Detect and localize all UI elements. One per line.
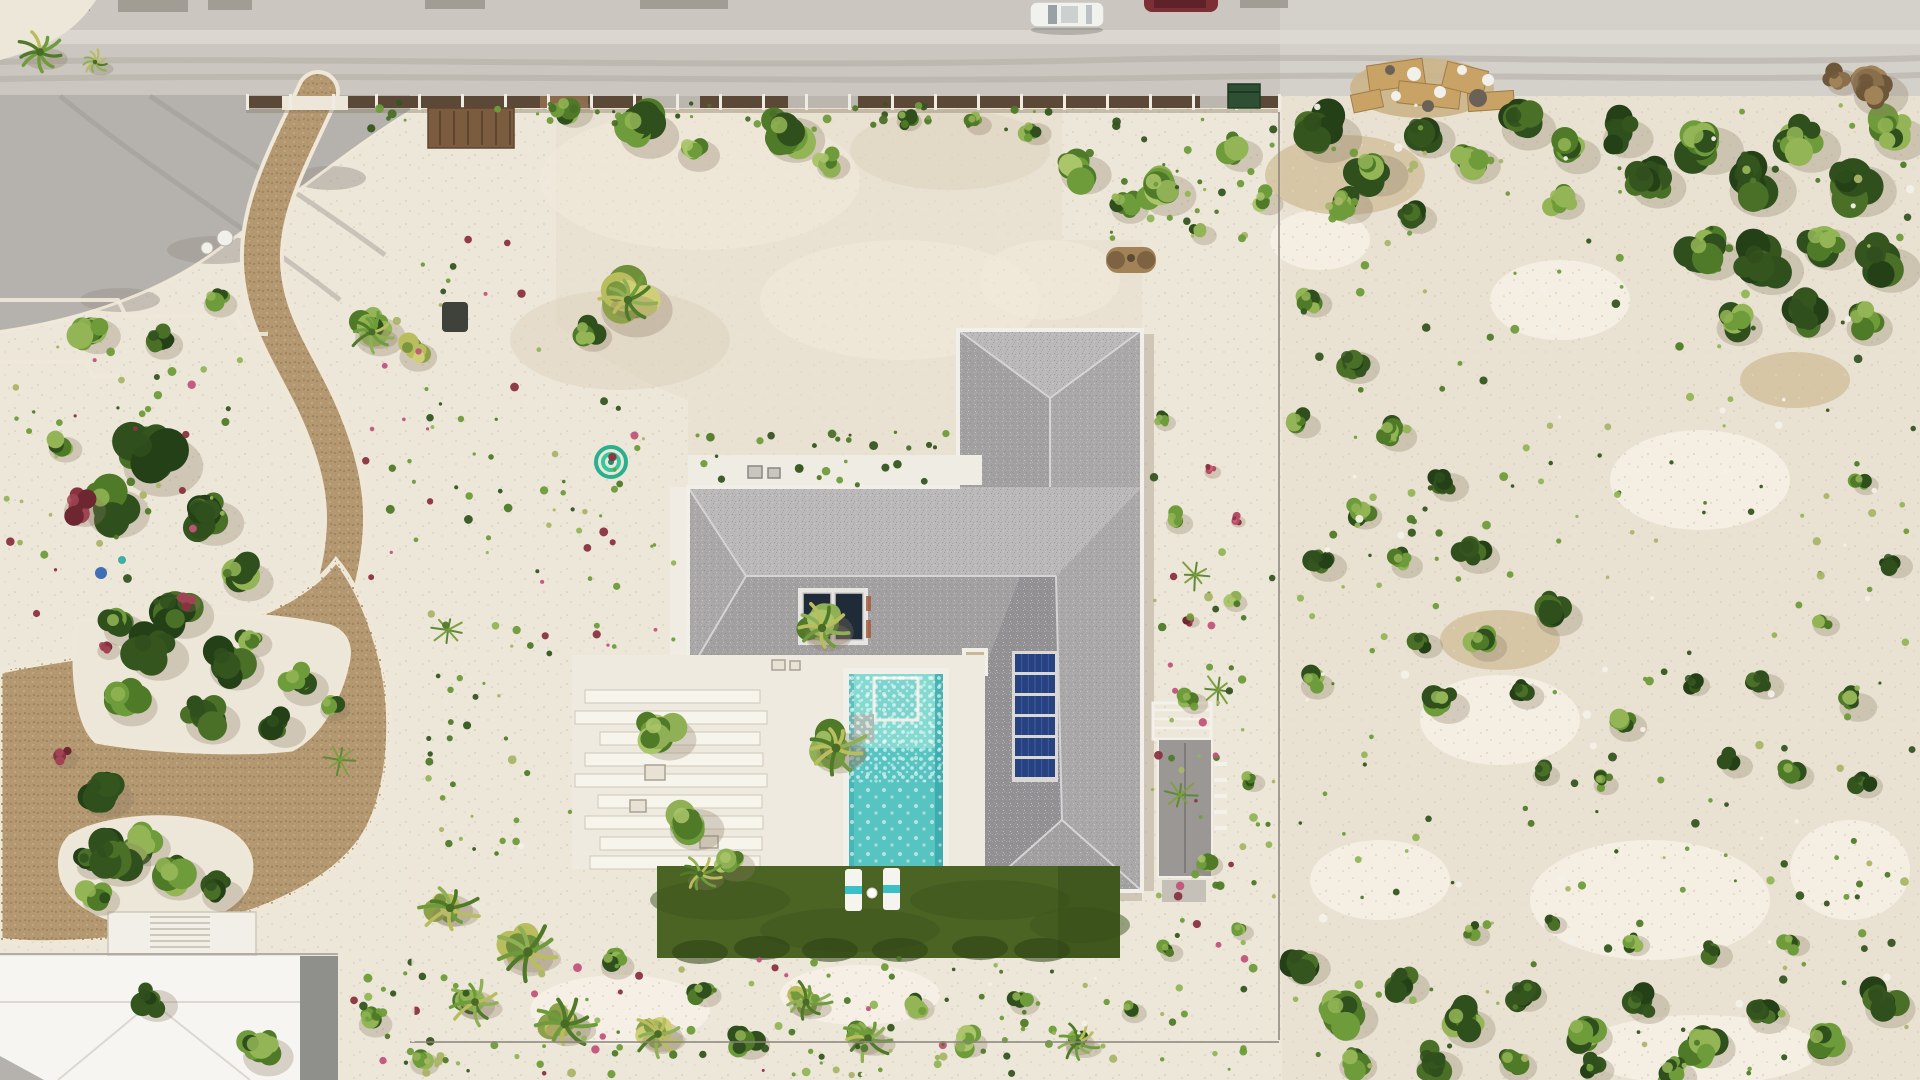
solar-array: [1012, 651, 1058, 782]
roadside-wall-mark: [1240, 0, 1288, 8]
roadside-wall-mark: [425, 0, 485, 9]
roof-vent: [768, 468, 780, 478]
palm-shadow: [1014, 938, 1070, 962]
deck-planter: [630, 800, 646, 812]
white-bag: [201, 242, 213, 254]
wall-post: [418, 94, 421, 110]
palm-shadow: [802, 938, 858, 962]
white-bag: [217, 230, 233, 246]
wall-post: [719, 94, 722, 110]
deck-planter: [772, 660, 785, 670]
roadside-wall-mark: [118, 0, 188, 12]
wall-post: [805, 94, 808, 110]
side-step: [1214, 826, 1227, 830]
wall-post: [934, 94, 937, 110]
roof-vent: [748, 466, 762, 478]
wall-post: [1106, 94, 1109, 110]
wall-post: [977, 94, 980, 110]
green-dumpster: [1228, 84, 1260, 108]
deck-planter: [645, 765, 665, 780]
terrace-slab: [585, 690, 760, 703]
wall-post: [676, 94, 679, 110]
wall-post: [1149, 94, 1152, 110]
wall-post: [848, 94, 851, 110]
side-step: [1214, 794, 1227, 798]
grill-equipment: [442, 302, 468, 332]
wall-post: [246, 94, 249, 110]
deck-planter: [790, 661, 800, 670]
ball: [867, 888, 877, 898]
roadside-wall-mark: [640, 0, 728, 9]
road: [0, 0, 1920, 96]
wall-post: [891, 94, 894, 110]
scene-svg: [0, 0, 1920, 1080]
side-step: [1214, 810, 1227, 814]
terrace-slab: [575, 774, 767, 787]
palm-shadow: [952, 936, 1008, 960]
aerial-photo: [0, 0, 1920, 1080]
wall-post: [1020, 94, 1023, 110]
roadside-wall-mark: [208, 0, 252, 10]
wall-panel-light: [788, 96, 858, 108]
side-step: [1214, 778, 1227, 782]
wall-post: [1192, 94, 1195, 110]
wall-post: [332, 94, 335, 110]
palm-shadow: [672, 940, 728, 964]
wall-post: [1278, 94, 1281, 110]
pool: [843, 668, 949, 874]
parapet-walkway: [688, 455, 982, 485]
palm-shadow: [734, 936, 790, 960]
wall-post: [762, 94, 765, 110]
blue-bucket: [95, 567, 107, 579]
wall-post: [1063, 94, 1066, 110]
wall-post: [289, 94, 292, 110]
side-step: [1214, 762, 1227, 766]
